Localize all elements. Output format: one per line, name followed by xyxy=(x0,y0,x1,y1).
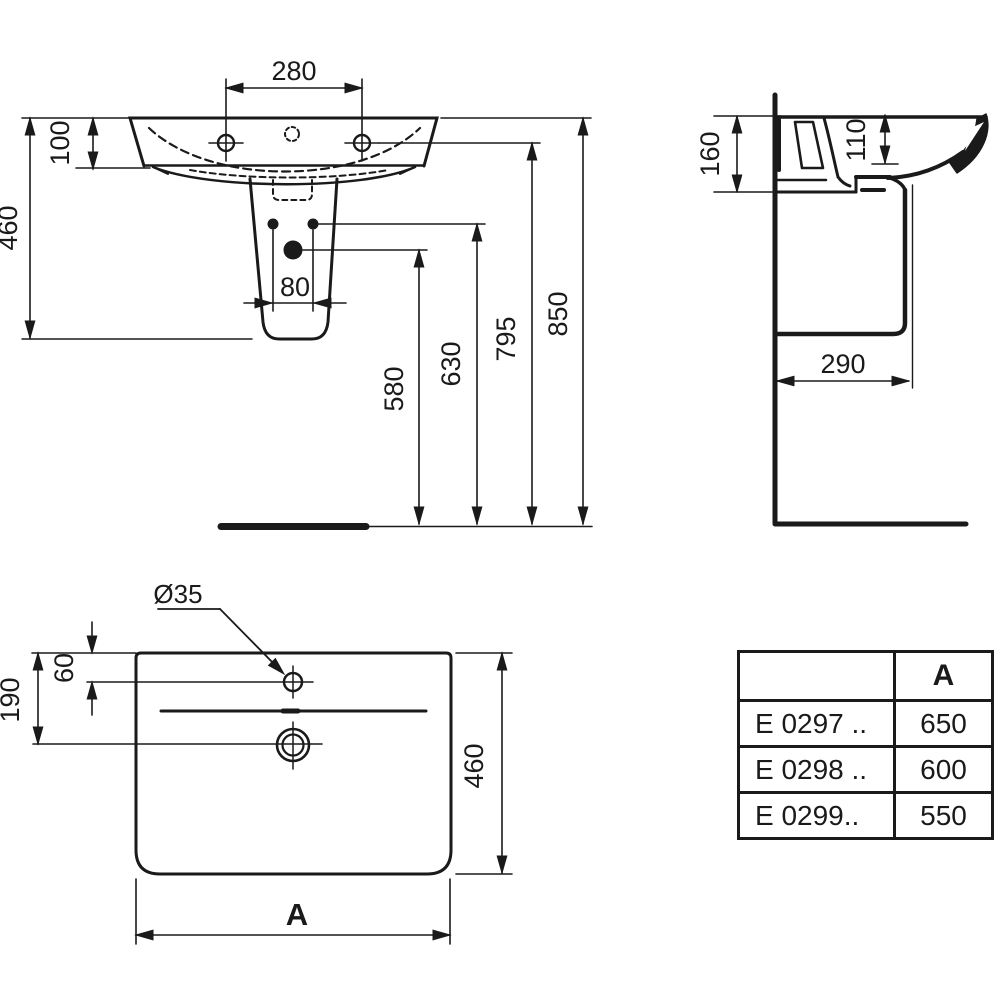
top-view xyxy=(32,609,512,944)
model-cell: E 0298 .. xyxy=(740,748,893,791)
table-row: E 0297 .. 650 xyxy=(740,699,991,745)
dim-label-160: 160 xyxy=(695,131,725,176)
a-value-cell: 600 xyxy=(893,748,991,791)
front-view xyxy=(22,79,592,527)
dim-label-795: 795 xyxy=(491,316,521,361)
table-row: E 0299.. 550 xyxy=(740,791,991,837)
dim-label-80: 80 xyxy=(280,272,310,302)
dim-label-580: 580 xyxy=(379,366,409,411)
leader-line xyxy=(220,609,280,670)
top-view-labels: Ø35 60 190 460 A xyxy=(0,579,489,932)
technical-drawing-page: 280 100 460 80 580 630 795 850 xyxy=(0,0,1000,1000)
drain-to-pedestal-curve xyxy=(890,178,905,190)
pedestal-hole-left-dot xyxy=(268,219,279,230)
table-header-model-cell xyxy=(740,653,893,699)
table-header-row: A xyxy=(740,653,991,699)
dim-label-630: 630 xyxy=(436,341,466,386)
waste-outlet-dot xyxy=(284,241,303,260)
pedestal-hole-right-dot xyxy=(308,219,319,230)
dim-label-460: 460 xyxy=(0,205,23,250)
drawing-canvas: 280 100 460 80 580 630 795 850 xyxy=(0,0,1000,1000)
model-cell: E 0299.. xyxy=(740,794,893,837)
dim-label-850: 850 xyxy=(543,291,573,336)
table-header-a-cell: A xyxy=(893,653,991,699)
tap-hole-section xyxy=(795,122,823,168)
dim-label-290: 290 xyxy=(820,349,865,379)
dim-label-190: 190 xyxy=(0,677,25,722)
dim-label-280: 280 xyxy=(271,56,316,86)
spec-table: A E 0297 .. 650 E 0298 .. 600 E 0299.. 5… xyxy=(737,650,994,840)
basin-outline xyxy=(130,118,437,166)
table-row: E 0298 .. 600 xyxy=(740,745,991,791)
pedestal-profile xyxy=(777,190,905,334)
hole-diameter-label: Ø35 xyxy=(153,579,202,609)
a-value-cell: 650 xyxy=(893,702,991,745)
front-view-labels: 280 100 460 80 580 630 795 850 xyxy=(0,56,573,412)
width-a-label: A xyxy=(286,897,308,932)
dim-label-110: 110 xyxy=(841,118,871,161)
side-view-labels: 160 110 290 xyxy=(695,118,871,379)
dim-label-460-plan: 460 xyxy=(459,743,489,788)
a-value-cell: 550 xyxy=(893,794,991,837)
overflow-hidden-circle xyxy=(285,127,299,141)
dim-label-60: 60 xyxy=(49,653,79,683)
model-cell: E 0297 .. xyxy=(740,702,893,745)
dim-label-100: 100 xyxy=(45,120,75,165)
